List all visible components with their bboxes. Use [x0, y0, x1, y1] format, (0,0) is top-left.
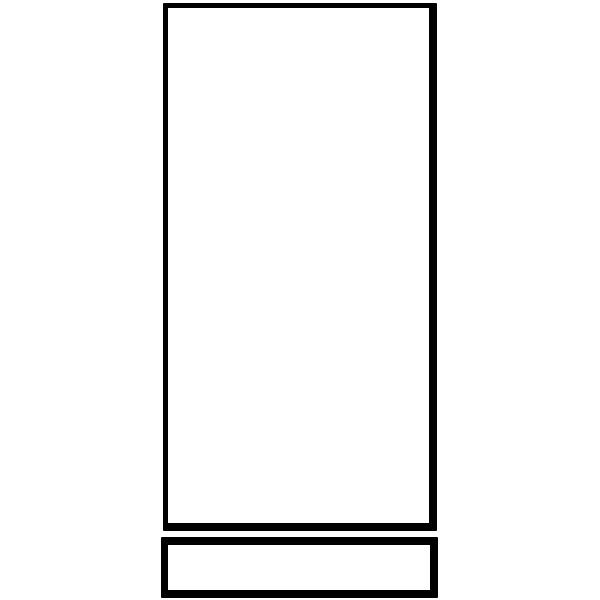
main-panel-outline	[163, 3, 437, 531]
drawing-canvas	[0, 0, 600, 600]
bottom-panel-outline	[161, 537, 438, 598]
